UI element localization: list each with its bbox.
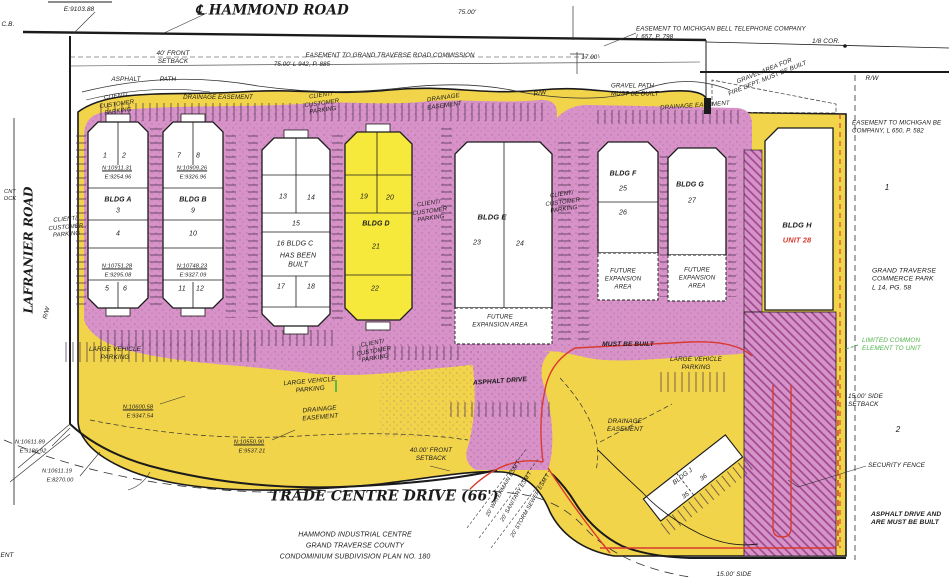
- site-plan-drawing: [0, 0, 949, 582]
- site-plan-canvas: E:9103.88C.B.℄ HAMMOND ROAD75.00'40' FRO…: [0, 0, 949, 582]
- building-g-shape: [668, 148, 726, 301]
- building-d-shape: [345, 124, 412, 330]
- building-f-shape: [598, 142, 658, 300]
- building-e-shape: [455, 142, 552, 344]
- building-b-shape: [163, 114, 223, 316]
- building-a-shape: [88, 114, 148, 316]
- building-h-shape: [765, 128, 833, 310]
- building-c-shape: [262, 130, 330, 334]
